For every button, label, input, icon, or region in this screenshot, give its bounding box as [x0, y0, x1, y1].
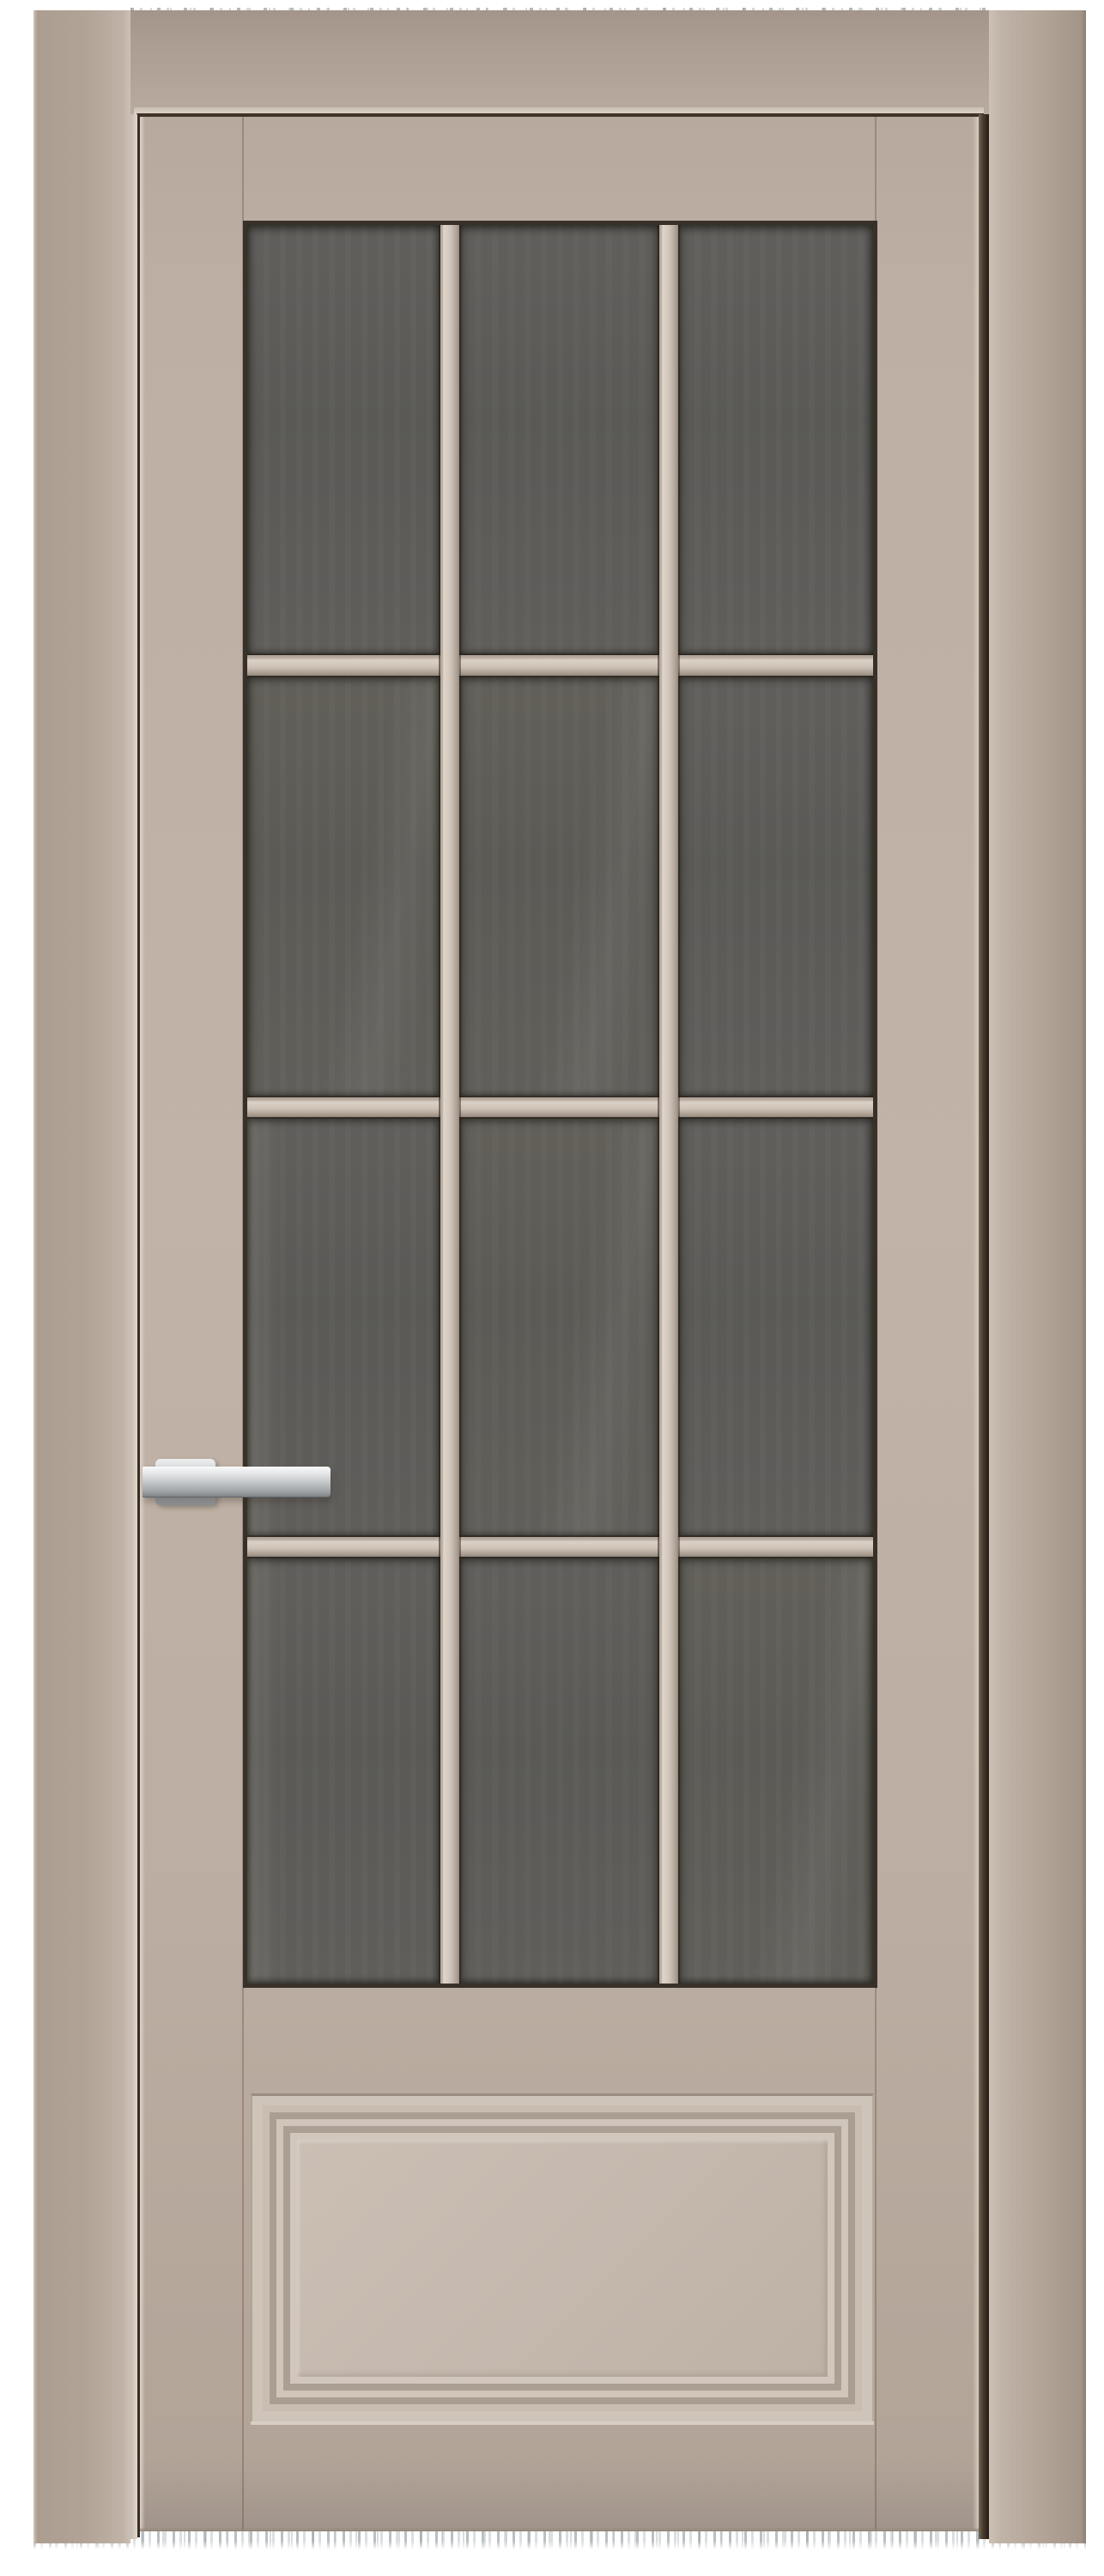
- glass-pane-r2c1: [247, 676, 440, 1097]
- glass-pane-r4c3: [678, 1557, 873, 1984]
- glass-pane-r1c1: [247, 225, 440, 655]
- glass-pane-r4c1: [247, 1557, 440, 1984]
- glass-pane-r2c3: [678, 676, 873, 1097]
- leaf-right-edge-highlight: [973, 117, 979, 2531]
- glass-pane-r2c2: [459, 676, 659, 1097]
- glass-pane-r3c3: [678, 1117, 873, 1537]
- gap-top-shadow: [136, 113, 984, 117]
- glass-pane-r3c2: [459, 1117, 659, 1537]
- glazing-bar-vertical-2: [659, 225, 678, 1984]
- door-frame-head-jamb: [130, 10, 989, 114]
- bottom-panel-raised-field: [297, 2140, 828, 2377]
- glass-pane-r4c2: [459, 1557, 659, 1984]
- glass-pane-r1c3: [678, 225, 873, 655]
- glazing-bar-horizontal-1: [247, 655, 873, 676]
- door-frame-left-jamb: [33, 10, 130, 2543]
- gap-right-shadow: [979, 114, 989, 2539]
- gap-left-shadow: [137, 114, 140, 2537]
- glass-pane-r1c2: [459, 225, 659, 655]
- glazing-bar-horizontal-2: [247, 1097, 873, 1117]
- door-frame-right-jamb: [989, 10, 1086, 2543]
- leaf-left-edge-highlight: [140, 117, 145, 2531]
- bottom-rail-highlight-line: [251, 2421, 874, 2425]
- gap-left-highlight: [130, 114, 137, 2539]
- glazing-bar-horizontal-3: [247, 1537, 873, 1557]
- bottom-blur-streaks: [33, 2531, 1086, 2549]
- lever-handle: [143, 1467, 331, 1498]
- glazing-bar-vertical-1: [440, 225, 459, 1984]
- leaf-bottom-edge-shadow: [140, 2527, 979, 2531]
- door-product-photo: [0, 0, 1104, 2576]
